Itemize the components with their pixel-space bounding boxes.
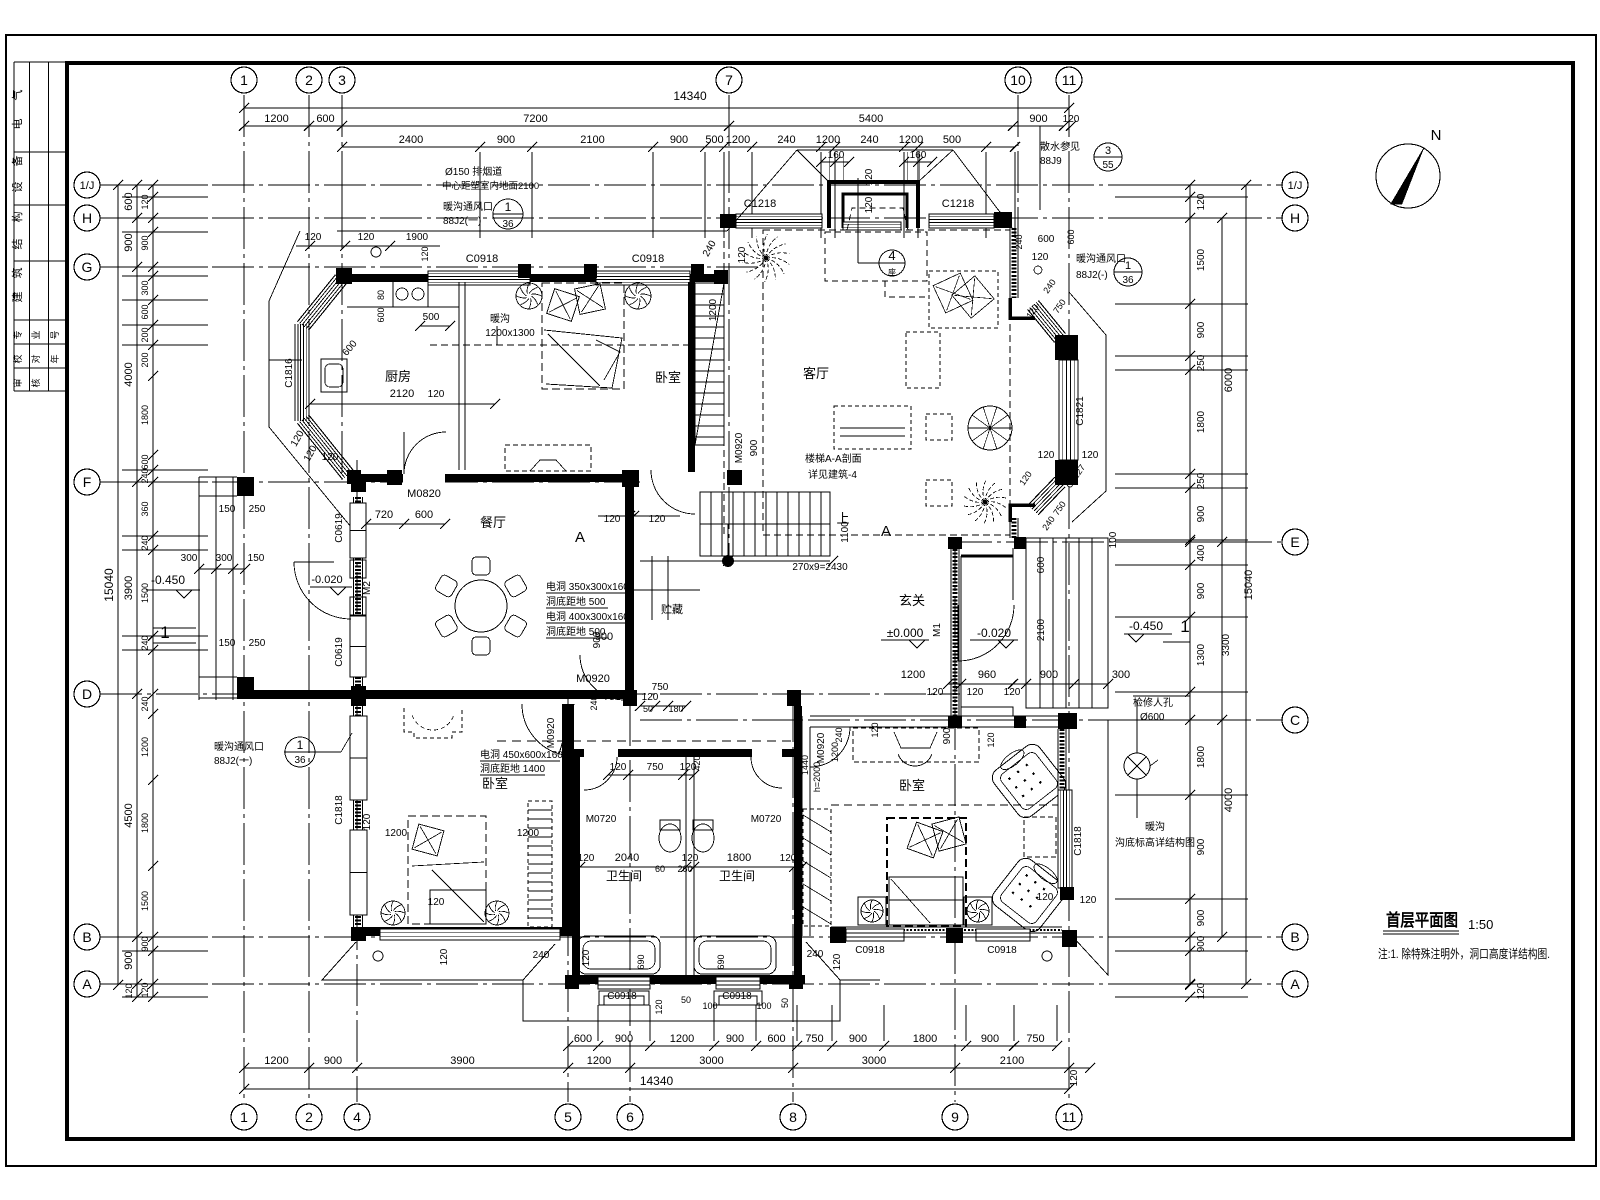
svg-text:卧室: 卧室 <box>655 370 681 385</box>
svg-text:250: 250 <box>1196 472 1207 489</box>
svg-text:100: 100 <box>702 1001 717 1011</box>
svg-text:卫生间: 卫生间 <box>606 869 642 883</box>
svg-text:C0918: C0918 <box>632 253 664 265</box>
svg-text:120: 120 <box>1196 193 1207 210</box>
svg-text:300: 300 <box>1112 669 1130 681</box>
svg-text:7200: 7200 <box>523 113 547 125</box>
svg-text:7: 7 <box>725 72 733 88</box>
svg-text:600: 600 <box>376 307 386 322</box>
svg-text:1: 1 <box>297 738 304 752</box>
svg-text:核: 核 <box>30 378 41 387</box>
svg-text:气: 气 <box>10 90 24 101</box>
svg-text:1: 1 <box>1125 260 1131 272</box>
svg-text:14340: 14340 <box>640 1074 674 1088</box>
svg-text:900: 900 <box>1196 838 1207 855</box>
svg-text:洞底距地 1400: 洞底距地 1400 <box>480 762 545 775</box>
svg-text:Ø600: Ø600 <box>1140 712 1165 723</box>
svg-text:120: 120 <box>578 853 595 864</box>
svg-text:690: 690 <box>636 954 646 969</box>
svg-text:500: 500 <box>705 134 723 146</box>
svg-text:暖沟: 暖沟 <box>1145 820 1165 833</box>
svg-text:88J2(一): 88J2(一) <box>443 216 481 227</box>
svg-text:15040: 15040 <box>1243 570 1255 601</box>
svg-text:座: 座 <box>888 267 896 277</box>
svg-text:720: 720 <box>375 509 393 521</box>
svg-text:750: 750 <box>805 1033 823 1045</box>
svg-text:1200x1300: 1200x1300 <box>485 328 535 339</box>
svg-text:1500: 1500 <box>140 583 150 603</box>
svg-text:8: 8 <box>789 1109 797 1125</box>
svg-text:900: 900 <box>615 1033 633 1045</box>
svg-text:88J9: 88J9 <box>1040 156 1062 167</box>
svg-text:200: 200 <box>140 327 150 342</box>
svg-text:3900: 3900 <box>450 1055 474 1067</box>
svg-text:校: 校 <box>12 354 23 363</box>
svg-text:1800: 1800 <box>913 1033 937 1045</box>
svg-text:玄关: 玄关 <box>899 593 925 608</box>
svg-text:结: 结 <box>11 239 24 250</box>
svg-text:240: 240 <box>140 468 150 483</box>
svg-text:300: 300 <box>181 553 198 564</box>
svg-text:±0.000: ±0.000 <box>887 626 924 640</box>
svg-text:A: A <box>881 523 891 540</box>
svg-text:36: 36 <box>294 755 306 766</box>
svg-text:贮藏: 贮藏 <box>661 603 683 616</box>
svg-text:专: 专 <box>12 330 23 339</box>
svg-text:120: 120 <box>1080 895 1097 906</box>
svg-text:120: 120 <box>420 246 430 261</box>
svg-text:120: 120 <box>362 813 373 830</box>
svg-text:120: 120 <box>967 687 984 698</box>
svg-text:120: 120 <box>124 983 134 998</box>
svg-text:50: 50 <box>681 995 691 1005</box>
svg-text:3: 3 <box>338 72 346 88</box>
svg-text:120: 120 <box>864 196 875 213</box>
svg-text:150: 150 <box>219 638 236 649</box>
svg-text:1200: 1200 <box>830 742 840 762</box>
svg-text:120: 120 <box>1004 687 1021 698</box>
svg-text:240: 240 <box>589 695 599 710</box>
svg-text:14340: 14340 <box>673 89 707 103</box>
svg-text:1800: 1800 <box>140 405 150 425</box>
svg-text:C1218: C1218 <box>744 198 776 210</box>
svg-text:沟底标高详结构图: 沟底标高详结构图 <box>1115 836 1195 849</box>
svg-text:120: 120 <box>1037 892 1054 903</box>
svg-text:900: 900 <box>140 235 150 250</box>
svg-text:6: 6 <box>626 1109 634 1125</box>
svg-text:120: 120 <box>780 853 797 864</box>
svg-text:240: 240 <box>860 134 878 146</box>
svg-text:100: 100 <box>1108 531 1119 548</box>
svg-text:10: 10 <box>1010 72 1026 88</box>
svg-text:120: 120 <box>322 452 339 463</box>
svg-text:F: F <box>83 474 92 490</box>
svg-text:1800: 1800 <box>1196 410 1207 433</box>
svg-text:150: 150 <box>248 553 265 564</box>
svg-text:900: 900 <box>1196 321 1207 338</box>
svg-text:C1816: C1816 <box>284 358 295 388</box>
svg-text:900: 900 <box>1196 582 1207 599</box>
svg-text:900: 900 <box>1196 505 1207 522</box>
svg-text:1200: 1200 <box>708 298 719 321</box>
svg-text:散水参见: 散水参见 <box>1040 140 1080 153</box>
svg-text:600: 600 <box>1038 234 1055 245</box>
svg-text:设: 设 <box>11 182 24 193</box>
svg-text:400: 400 <box>1196 544 1207 561</box>
svg-text:1200: 1200 <box>670 1033 694 1045</box>
svg-text:88J2(一): 88J2(一) <box>214 756 252 767</box>
svg-text:暖沟通风口: 暖沟通风口 <box>1076 252 1126 265</box>
svg-text:240: 240 <box>140 635 150 650</box>
svg-text:120: 120 <box>358 232 375 243</box>
svg-text:900: 900 <box>849 1033 867 1045</box>
svg-text:卧室: 卧室 <box>482 776 508 791</box>
svg-text:1200: 1200 <box>899 134 923 146</box>
svg-text:M0820: M0820 <box>407 488 441 500</box>
svg-text:80: 80 <box>376 290 386 300</box>
svg-text:4000: 4000 <box>1223 788 1235 812</box>
svg-text:900: 900 <box>749 439 760 456</box>
svg-text:900: 900 <box>324 1055 342 1067</box>
svg-text:3000: 3000 <box>862 1055 886 1067</box>
svg-text:1: 1 <box>1180 617 1189 636</box>
svg-text:690: 690 <box>716 954 726 969</box>
svg-text:M1: M1 <box>932 623 943 637</box>
svg-text:E: E <box>1290 534 1299 550</box>
svg-text:11: 11 <box>1062 72 1077 88</box>
svg-text:A: A <box>1290 976 1300 992</box>
svg-text:1: 1 <box>505 200 512 214</box>
svg-text:1200: 1200 <box>816 134 840 146</box>
svg-text:C0619: C0619 <box>334 513 345 543</box>
svg-text:1/J: 1/J <box>80 180 95 192</box>
svg-text:120: 120 <box>642 692 659 703</box>
svg-text:300: 300 <box>216 553 233 564</box>
svg-text:900: 900 <box>123 951 135 969</box>
svg-text:检修人孔: 检修人孔 <box>1133 696 1173 709</box>
svg-text:2120: 2120 <box>390 388 414 400</box>
svg-text:审: 审 <box>12 378 23 387</box>
svg-text:600: 600 <box>767 1033 785 1045</box>
svg-text:50: 50 <box>780 998 790 1008</box>
svg-text:号: 号 <box>50 330 60 339</box>
svg-text:1200: 1200 <box>517 828 540 839</box>
svg-text:1200: 1200 <box>587 1055 611 1067</box>
svg-text:M0720: M0720 <box>586 814 617 825</box>
svg-text:H: H <box>82 210 92 226</box>
svg-text:600: 600 <box>123 192 135 210</box>
svg-text:900: 900 <box>1029 113 1047 125</box>
svg-text:240: 240 <box>1014 234 1024 249</box>
svg-text:卧室: 卧室 <box>899 778 925 793</box>
svg-text:3900: 3900 <box>123 576 135 600</box>
svg-text:C1821: C1821 <box>1075 396 1086 426</box>
svg-text:600: 600 <box>1066 229 1076 244</box>
svg-text:2100: 2100 <box>1036 618 1047 641</box>
svg-text:中心距塑室内地面2100: 中心距塑室内地面2100 <box>442 180 539 192</box>
svg-text:600: 600 <box>1036 556 1047 573</box>
svg-text:120: 120 <box>870 722 880 737</box>
svg-text:暖沟通风口: 暖沟通风口 <box>443 200 493 213</box>
svg-text:120: 120 <box>305 232 322 243</box>
svg-text:240: 240 <box>777 134 795 146</box>
svg-text:C1218: C1218 <box>942 198 974 210</box>
svg-text:2040: 2040 <box>615 852 639 864</box>
svg-text:2100: 2100 <box>1000 1055 1024 1067</box>
svg-text:120: 120 <box>1038 450 1055 461</box>
svg-text:C1818: C1818 <box>1073 826 1084 856</box>
svg-text:100: 100 <box>756 1001 771 1011</box>
svg-text:240: 240 <box>533 950 550 961</box>
svg-text:洞底距地 500: 洞底距地 500 <box>546 595 606 608</box>
svg-text:3300: 3300 <box>1221 633 1232 656</box>
svg-text:120: 120 <box>927 687 944 698</box>
svg-text:88J2(-): 88J2(-) <box>1076 270 1108 281</box>
svg-text:11: 11 <box>1062 1109 1077 1125</box>
svg-text:600: 600 <box>574 1033 592 1045</box>
svg-text:C0918: C0918 <box>855 945 885 956</box>
svg-text:900: 900 <box>140 936 150 951</box>
svg-text:240: 240 <box>140 696 150 711</box>
svg-text:暖沟通风口: 暖沟通风口 <box>214 740 264 753</box>
svg-text:120: 120 <box>140 982 150 997</box>
svg-text:160: 160 <box>828 150 845 161</box>
svg-text:900: 900 <box>1040 669 1058 681</box>
svg-text:120: 120 <box>737 246 748 263</box>
svg-text:900: 900 <box>942 727 953 744</box>
svg-text:建: 建 <box>10 292 24 303</box>
svg-text:-0.450: -0.450 <box>151 573 185 587</box>
svg-text:900: 900 <box>726 1033 744 1045</box>
svg-text:暖沟: 暖沟 <box>490 312 510 325</box>
svg-text:1200: 1200 <box>264 1055 288 1067</box>
svg-text:120: 120 <box>1082 450 1099 461</box>
svg-text:270x9=2430: 270x9=2430 <box>792 562 848 573</box>
svg-text:详见建筑-4: 详见建筑-4 <box>808 468 857 481</box>
svg-text:250: 250 <box>249 638 266 649</box>
svg-text:1100: 1100 <box>840 521 851 543</box>
svg-text:C0619: C0619 <box>334 637 345 667</box>
svg-text:C1818: C1818 <box>334 795 345 825</box>
svg-text:60: 60 <box>655 864 665 874</box>
svg-text:120: 120 <box>1069 1069 1080 1086</box>
svg-text:2: 2 <box>305 1109 313 1125</box>
svg-text:120: 120 <box>1063 114 1080 125</box>
svg-text:D: D <box>82 686 92 702</box>
svg-text:6000: 6000 <box>1223 368 1235 392</box>
svg-text:750: 750 <box>604 692 621 703</box>
svg-text:厨房: 厨房 <box>385 369 411 384</box>
svg-text:B: B <box>1290 929 1299 945</box>
svg-text:业: 业 <box>31 330 41 339</box>
svg-text:电: 电 <box>11 119 24 130</box>
svg-text:240: 240 <box>834 727 844 742</box>
svg-text:360: 360 <box>140 501 150 516</box>
svg-text:C: C <box>1290 712 1300 728</box>
svg-text:120: 120 <box>682 853 699 864</box>
svg-text:1440: 1440 <box>800 755 810 775</box>
svg-text:1300: 1300 <box>1196 643 1207 666</box>
svg-text:600: 600 <box>140 454 150 469</box>
svg-text:对: 对 <box>30 354 41 363</box>
svg-text:M0920: M0920 <box>576 673 610 685</box>
svg-text:1:50: 1:50 <box>1468 917 1493 932</box>
svg-text:A: A <box>82 976 92 992</box>
svg-text:M0920: M0920 <box>734 432 745 463</box>
svg-text:1800: 1800 <box>727 852 751 864</box>
svg-text:备: 备 <box>10 156 24 167</box>
svg-text:36: 36 <box>502 219 514 230</box>
svg-text:300: 300 <box>140 280 150 295</box>
svg-text:4000: 4000 <box>123 362 135 386</box>
svg-text:1: 1 <box>240 1109 248 1125</box>
svg-text:-0.020: -0.020 <box>311 574 342 586</box>
svg-text:2400: 2400 <box>399 134 423 146</box>
svg-text:120: 120 <box>581 949 592 966</box>
svg-text:C0918: C0918 <box>607 991 637 1002</box>
svg-text:注:1. 除特殊注明外，洞口高度详结构图.: 注:1. 除特殊注明外，洞口高度详结构图. <box>1378 946 1550 961</box>
svg-text:15040: 15040 <box>102 568 116 602</box>
svg-text:电洞 350x300x160: 电洞 350x300x160 <box>546 580 629 593</box>
svg-text:1500: 1500 <box>1196 248 1207 271</box>
svg-text:260: 260 <box>677 864 692 874</box>
svg-text:9: 9 <box>951 1109 959 1125</box>
svg-text:M0720: M0720 <box>751 814 782 825</box>
svg-text:120: 120 <box>986 732 996 747</box>
svg-text:C0918: C0918 <box>987 945 1017 956</box>
svg-text:C0918: C0918 <box>722 991 752 1002</box>
svg-text:250: 250 <box>249 504 266 515</box>
svg-text:M0920: M0920 <box>546 717 557 748</box>
svg-text:150: 150 <box>219 504 236 515</box>
svg-text:1200: 1200 <box>264 113 288 125</box>
svg-text:客厅: 客厅 <box>803 366 829 381</box>
svg-text:750: 750 <box>647 762 664 773</box>
svg-text:电洞 450x600x160: 电洞 450x600x160 <box>480 748 563 761</box>
svg-text:H: H <box>1290 210 1300 226</box>
svg-text:1900: 1900 <box>406 232 429 243</box>
svg-text:卫生间: 卫生间 <box>719 869 755 883</box>
svg-text:500: 500 <box>943 134 961 146</box>
svg-text:900: 900 <box>1196 909 1207 926</box>
svg-text:Ø150 排烟道: Ø150 排烟道 <box>445 165 502 178</box>
svg-text:200: 200 <box>140 352 150 367</box>
svg-text:A: A <box>575 529 585 546</box>
svg-text:G: G <box>82 259 93 275</box>
svg-text:250: 250 <box>1196 354 1207 371</box>
svg-text:1800: 1800 <box>140 813 150 833</box>
svg-text:900: 900 <box>592 631 603 648</box>
svg-text:1200: 1200 <box>385 828 408 839</box>
svg-text:600: 600 <box>316 113 334 125</box>
svg-text:4500: 4500 <box>123 803 135 827</box>
svg-text:750: 750 <box>1026 1033 1044 1045</box>
svg-text:120: 120 <box>1032 252 1049 263</box>
svg-text:1200: 1200 <box>140 737 150 757</box>
svg-text:240: 240 <box>140 535 150 550</box>
svg-text:餐厅: 餐厅 <box>480 515 506 530</box>
svg-text:120: 120 <box>654 999 664 1014</box>
svg-text:1200: 1200 <box>901 669 925 681</box>
svg-text:楼梯A-A剖面: 楼梯A-A剖面 <box>805 452 862 465</box>
svg-text:-0.450: -0.450 <box>1129 619 1163 633</box>
svg-text:B: B <box>82 929 91 945</box>
svg-text:600: 600 <box>140 304 150 319</box>
svg-text:1: 1 <box>240 72 248 88</box>
svg-text:M0920: M0920 <box>816 732 827 763</box>
svg-text:5: 5 <box>564 1109 572 1125</box>
svg-text:120: 120 <box>439 948 450 965</box>
svg-text:120: 120 <box>832 953 843 970</box>
svg-text:55: 55 <box>1102 160 1114 171</box>
svg-text:120: 120 <box>428 389 445 400</box>
svg-text:960: 960 <box>978 669 996 681</box>
svg-text:5400: 5400 <box>859 113 883 125</box>
svg-text:4: 4 <box>353 1109 361 1125</box>
svg-text:3000: 3000 <box>699 1055 723 1067</box>
svg-text:-0.020: -0.020 <box>977 626 1011 640</box>
svg-text:年: 年 <box>49 354 60 363</box>
svg-text:1800: 1800 <box>1196 745 1207 768</box>
svg-text:900: 900 <box>981 1033 999 1045</box>
svg-text:2: 2 <box>305 72 313 88</box>
svg-text:900: 900 <box>497 134 515 146</box>
svg-text:1/J: 1/J <box>1288 180 1303 192</box>
svg-text:1: 1 <box>160 623 169 642</box>
svg-text:3: 3 <box>1105 145 1111 157</box>
svg-text:1200: 1200 <box>726 134 750 146</box>
svg-text:600: 600 <box>415 509 433 521</box>
svg-text:首层平面图: 首层平面图 <box>1386 910 1458 930</box>
svg-text:N: N <box>1431 127 1442 144</box>
svg-text:筑: 筑 <box>10 268 24 279</box>
svg-text:构: 构 <box>10 212 24 223</box>
svg-text:C0918: C0918 <box>466 253 498 265</box>
svg-text:电洞 400x300x160: 电洞 400x300x160 <box>546 610 629 623</box>
svg-text:2100: 2100 <box>580 134 604 146</box>
svg-text:900: 900 <box>123 233 135 251</box>
svg-text:900: 900 <box>1196 935 1207 952</box>
svg-text:M2: M2 <box>362 581 373 595</box>
svg-text:900: 900 <box>670 134 688 146</box>
svg-text:4: 4 <box>888 248 895 263</box>
svg-text:36: 36 <box>1122 275 1134 286</box>
svg-text:1500: 1500 <box>140 891 150 911</box>
svg-text:120: 120 <box>428 897 445 908</box>
